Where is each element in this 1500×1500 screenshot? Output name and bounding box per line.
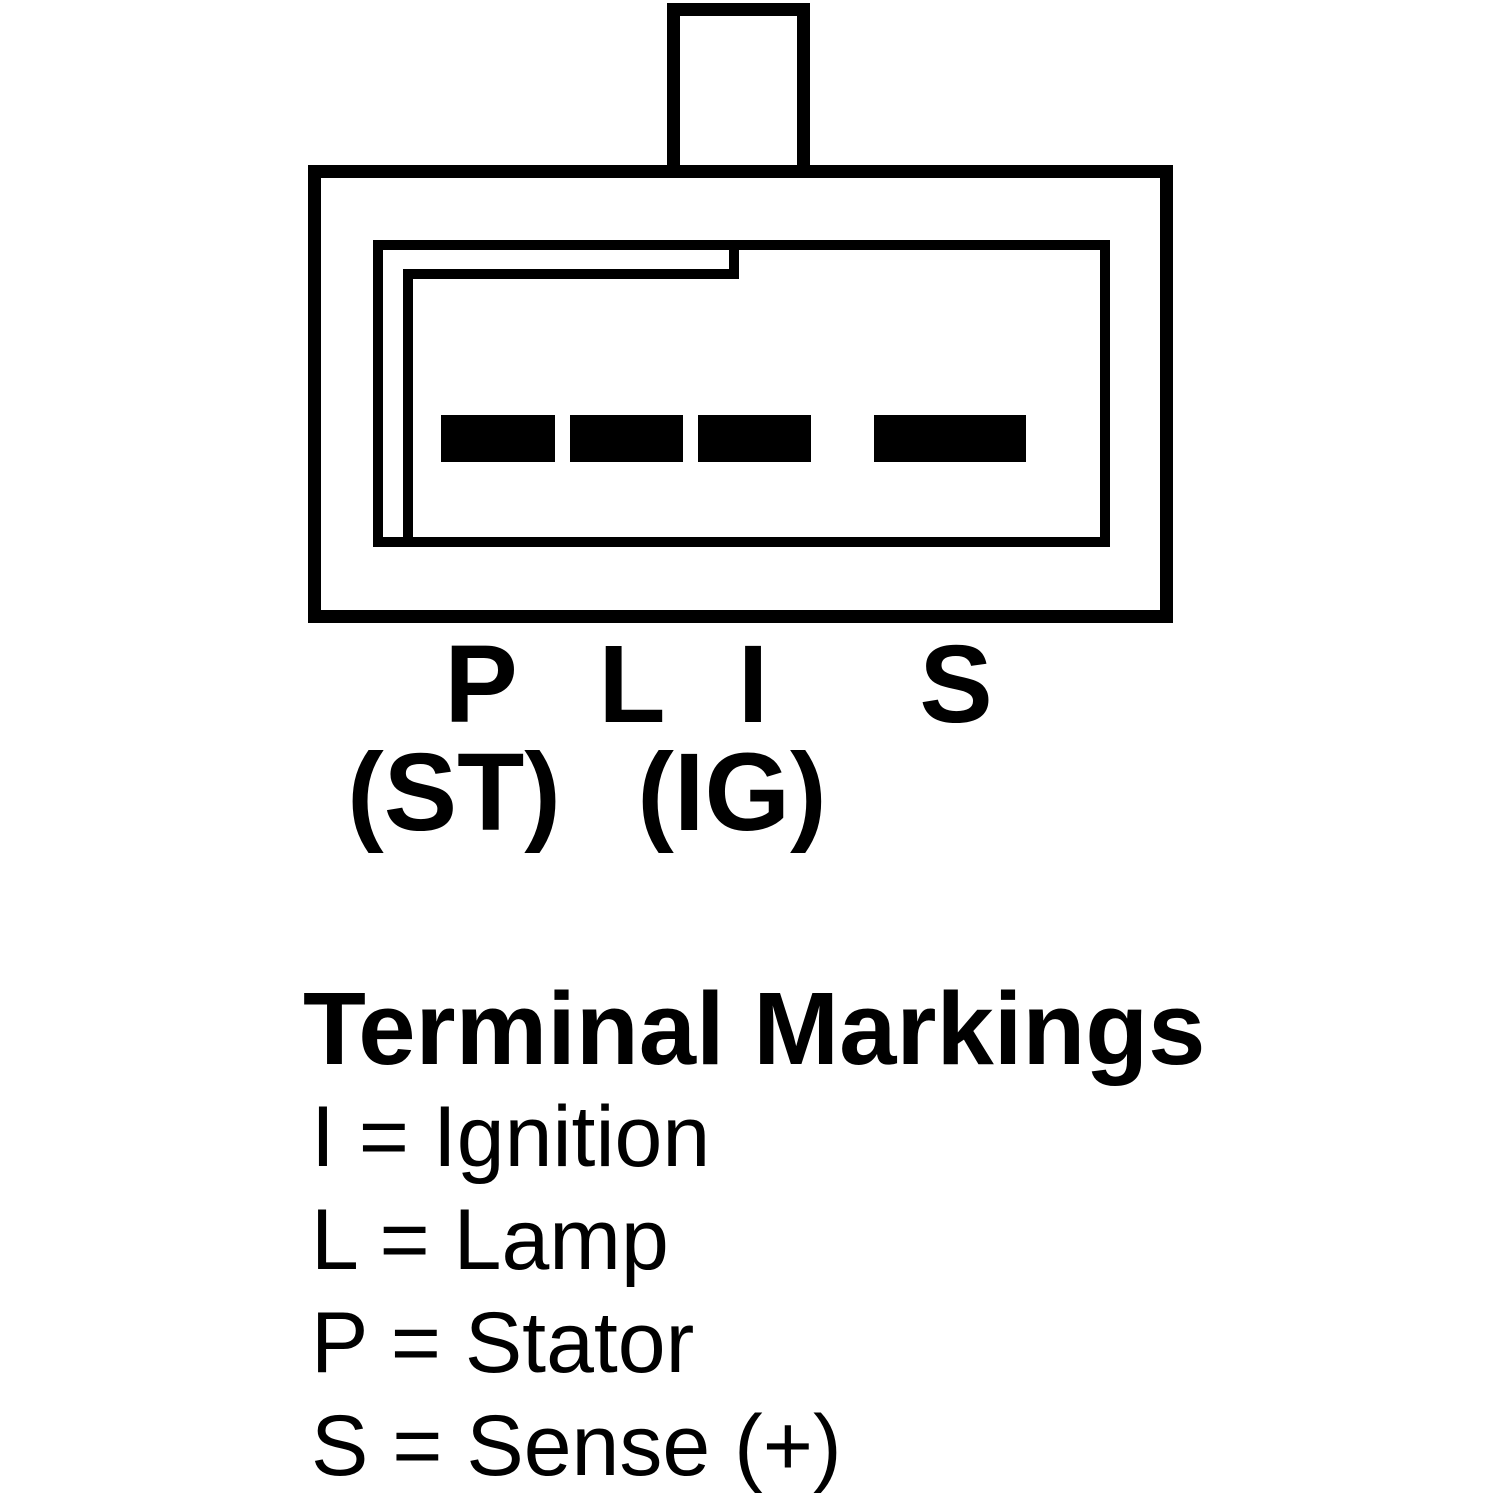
legend-entry-stator: P = Stator [311,1292,842,1395]
terminal-label-i: I [738,630,769,740]
legend-entry-lamp: L = Lamp [311,1189,842,1292]
connector-outer-shell [315,172,1167,617]
legend-entry-ignition: I = Ignition [311,1086,842,1189]
legend-title: Terminal Markings [303,977,1205,1080]
terminal-pin-i [698,415,811,462]
terminal-label-p: P [444,630,517,740]
terminal-pin-s [874,415,1026,462]
sub-label-st: (ST) [347,738,561,848]
connector-tab [674,10,804,172]
terminal-pin-p [441,415,555,462]
terminal-label-l: L [598,630,665,740]
legend-list: I = Ignition L = Lamp P = Stator S = Sen… [311,1086,842,1498]
sub-label-ig: (IG) [637,738,826,848]
terminal-label-s: S [919,630,992,740]
legend-entry-sense: S = Sense (+) [311,1395,842,1498]
diagram-page: P L I S (ST) (IG) Terminal Markings I = … [0,0,1500,1500]
terminal-pin-l [570,415,683,462]
